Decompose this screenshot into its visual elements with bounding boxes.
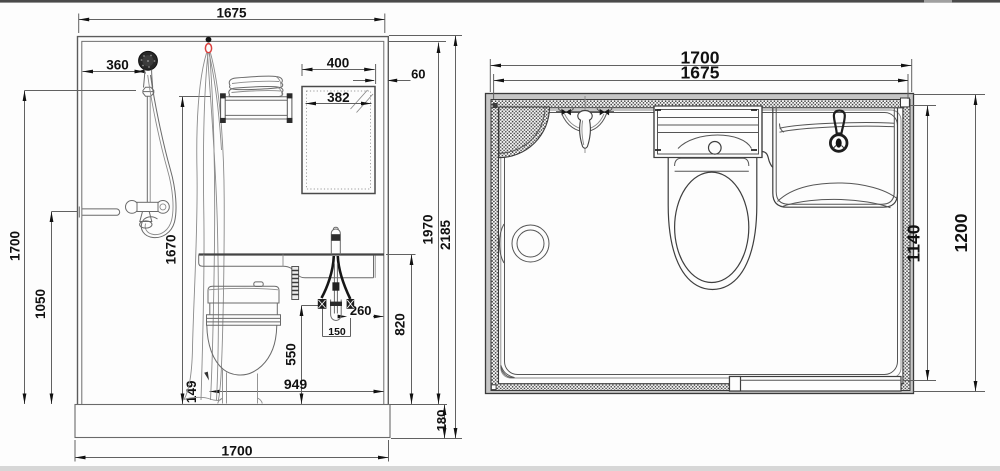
svg-text:1970: 1970 xyxy=(421,214,436,244)
svg-text:382: 382 xyxy=(327,90,350,105)
svg-text:400: 400 xyxy=(327,55,350,70)
svg-text:1700: 1700 xyxy=(221,442,252,458)
svg-text:1675: 1675 xyxy=(681,63,720,83)
svg-text:1700: 1700 xyxy=(8,231,23,261)
svg-text:1050: 1050 xyxy=(33,289,48,319)
svg-text:1675: 1675 xyxy=(216,6,247,21)
svg-text:149: 149 xyxy=(184,381,199,404)
svg-text:820: 820 xyxy=(392,313,407,336)
svg-text:1670: 1670 xyxy=(164,234,179,264)
svg-text:180: 180 xyxy=(434,410,449,432)
svg-text:550: 550 xyxy=(284,343,299,366)
svg-text:360: 360 xyxy=(106,58,129,73)
svg-text:2185: 2185 xyxy=(438,219,453,250)
svg-text:1200: 1200 xyxy=(951,213,971,252)
svg-text:150: 150 xyxy=(328,326,346,338)
svg-text:60: 60 xyxy=(411,67,425,82)
svg-text:949: 949 xyxy=(284,376,308,392)
svg-text:1140: 1140 xyxy=(903,224,923,262)
